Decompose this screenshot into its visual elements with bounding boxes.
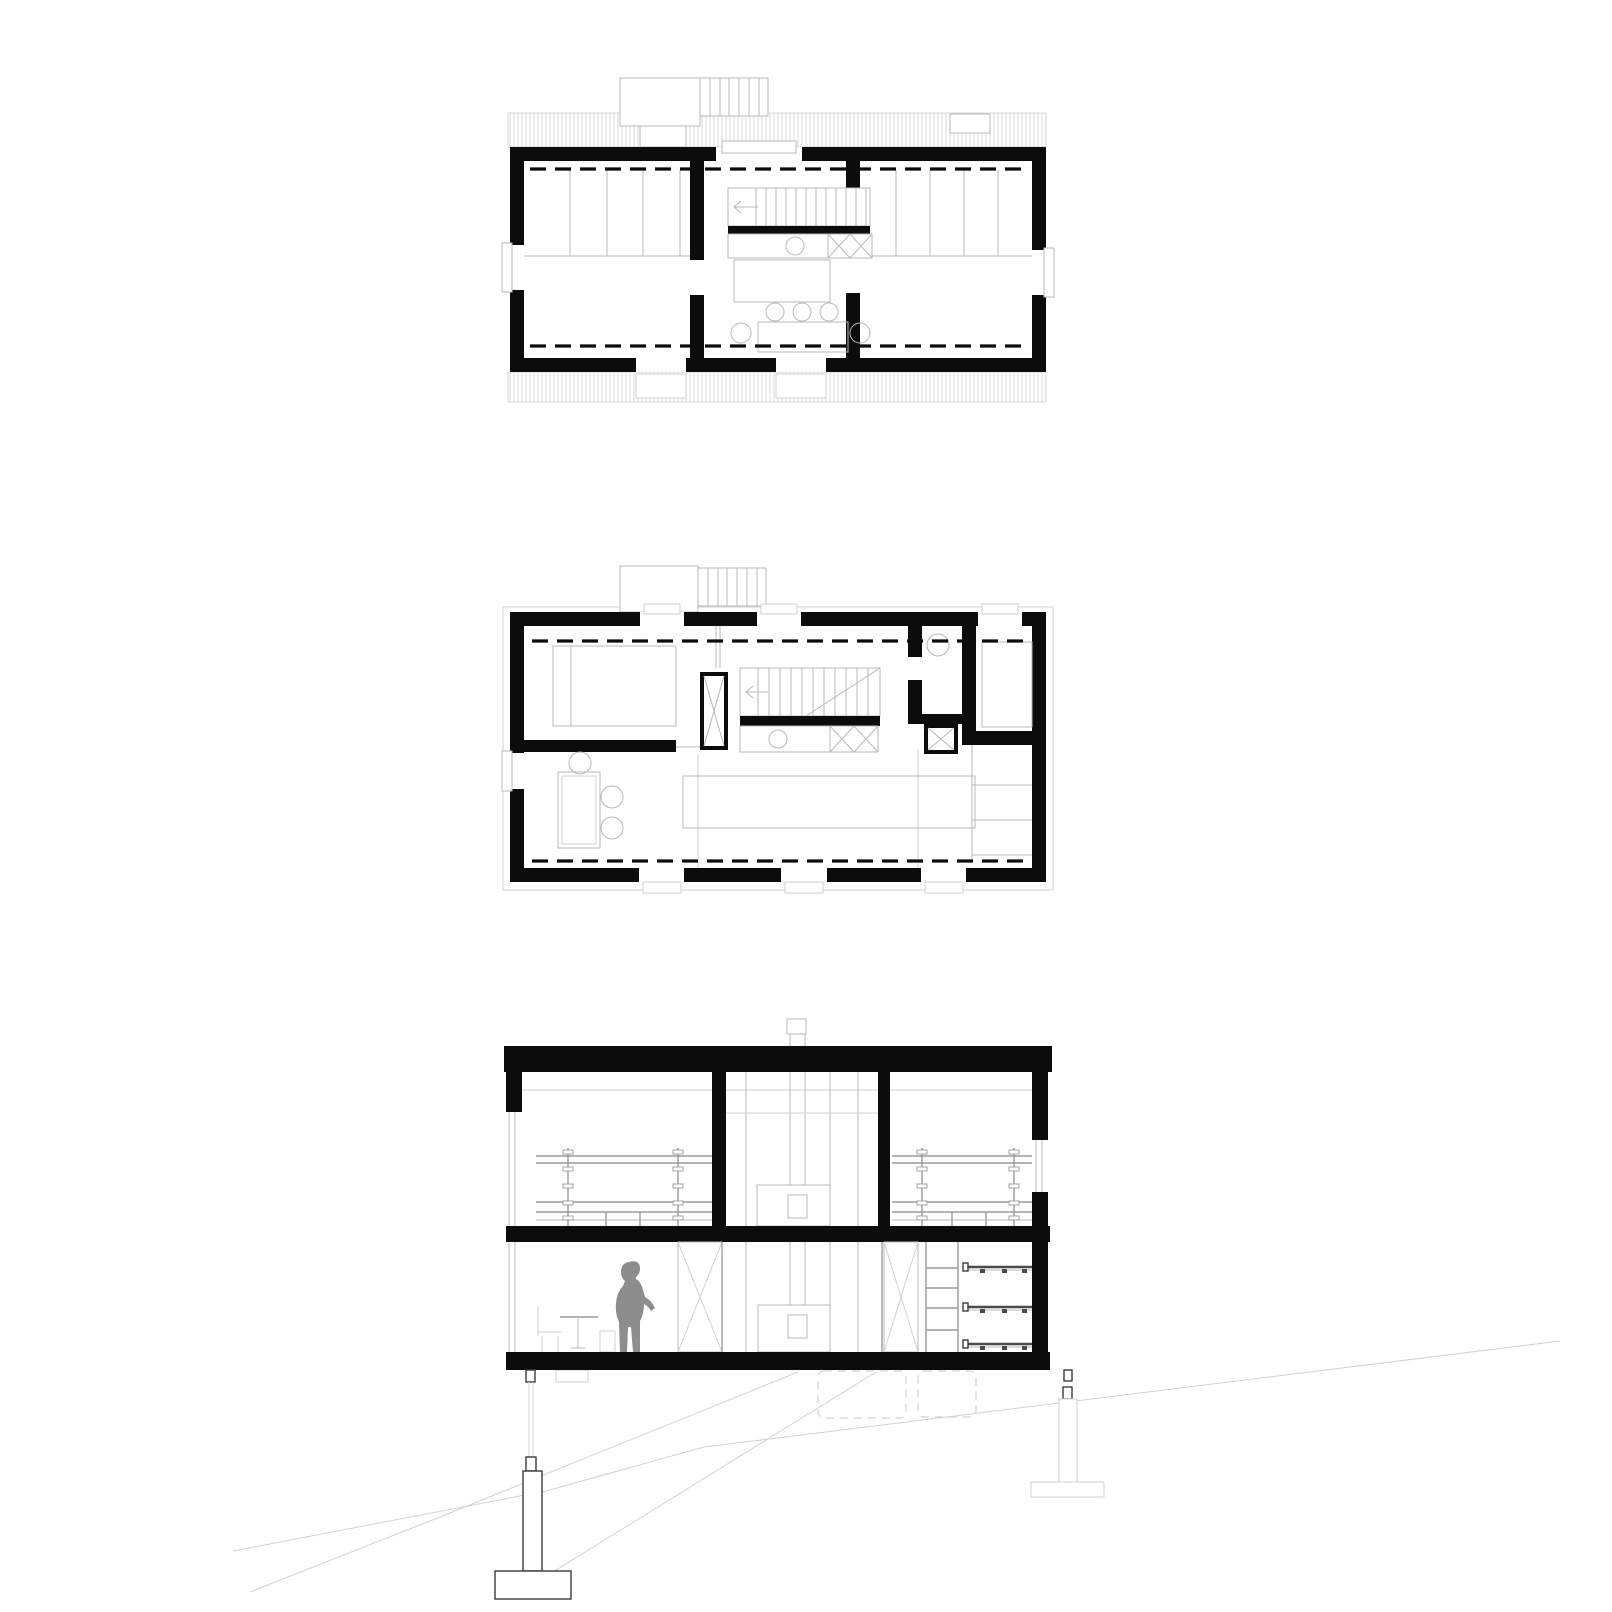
ground-floor-interior (538, 1242, 1032, 1352)
person-silhouette (616, 1261, 655, 1352)
exterior-stair (698, 568, 766, 606)
cafe-table-and-chair (538, 1306, 615, 1352)
stool (600, 1331, 615, 1352)
stair-wall (728, 226, 870, 234)
roof-slab (504, 1046, 1052, 1072)
bath-vanity (740, 726, 878, 752)
chimney-flue (790, 1072, 805, 1185)
floor-slab (506, 1226, 1050, 1242)
column (1059, 1399, 1077, 1482)
entry-landing (620, 78, 700, 126)
shaft-small (924, 724, 958, 754)
chair (538, 1306, 562, 1352)
stair (728, 188, 870, 226)
entry-step (640, 126, 686, 147)
door-right (882, 1242, 918, 1352)
stair-wall (740, 716, 880, 726)
window-glazing (1036, 1140, 1042, 1192)
column (523, 1471, 542, 1571)
ground-floor-plan (502, 566, 1053, 893)
upper-floor-plan (502, 78, 1054, 402)
chimney-flue (790, 1242, 805, 1305)
wall-shelves (963, 1263, 1032, 1350)
stove-cabinet (757, 1185, 830, 1226)
stilt-right (1031, 1370, 1104, 1497)
partition-right (878, 1072, 890, 1226)
car-outline-dashed (818, 1371, 976, 1418)
bedframe-rails-left (536, 1148, 712, 1226)
footing (495, 1571, 571, 1599)
door-left (678, 1242, 722, 1352)
terrain-lines (233, 1341, 1560, 1592)
window-glazing (509, 1242, 515, 1352)
chimney (787, 1019, 806, 1046)
architectural-drawing-sheet (0, 0, 1612, 1612)
partition-left (712, 1072, 726, 1226)
stove-cabinet (758, 1305, 830, 1352)
ground-slab (506, 1352, 1050, 1370)
roof-opening (950, 114, 990, 133)
bedframe-rails-right (892, 1148, 1032, 1226)
exterior-stair (700, 78, 768, 116)
ladder (926, 1242, 958, 1352)
window-glazing (509, 1112, 515, 1226)
right-wall (1032, 1072, 1048, 1352)
stilt-left (495, 1370, 571, 1599)
shaft-tall (700, 672, 728, 750)
left-wall (506, 1072, 522, 1352)
cross-section (233, 1019, 1560, 1599)
upper-floor-interior (522, 1072, 1032, 1226)
footing (1031, 1482, 1104, 1497)
